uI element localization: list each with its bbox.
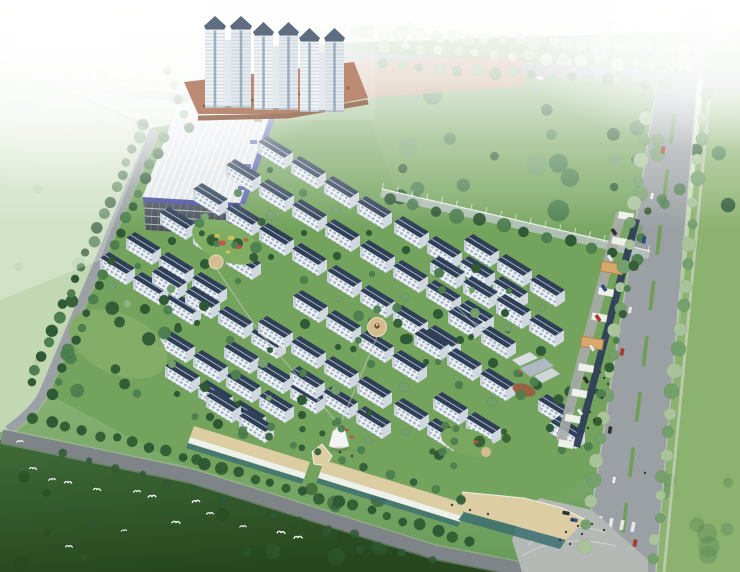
tree-icon	[192, 413, 199, 420]
tree-icon	[487, 397, 497, 407]
tree-icon	[366, 230, 372, 236]
tree-icon	[58, 299, 68, 309]
tree-icon	[133, 389, 142, 398]
tree-icon	[199, 230, 205, 236]
tree-icon	[27, 413, 38, 424]
tree-icon	[625, 239, 636, 250]
tree-icon	[401, 293, 409, 301]
tree-icon	[298, 486, 307, 495]
tree-icon	[667, 363, 682, 378]
tree-icon	[305, 483, 318, 496]
tree-icon	[111, 364, 121, 374]
tree-icon	[338, 456, 346, 464]
tree-icon	[44, 337, 54, 347]
tree-icon	[456, 336, 464, 344]
tree-icon	[504, 324, 512, 332]
tree-icon	[319, 430, 325, 436]
tree-icon	[127, 436, 138, 447]
tree-icon	[111, 464, 119, 472]
tree-icon	[163, 305, 172, 314]
person-dot	[339, 451, 341, 453]
tree-icon	[333, 252, 341, 260]
tree-icon	[114, 317, 125, 328]
tree-icon	[135, 263, 141, 269]
tree-icon	[536, 346, 546, 356]
tree-icon	[95, 281, 104, 290]
tree-icon	[198, 458, 210, 470]
tree-icon	[624, 285, 631, 292]
tree-icon	[609, 350, 619, 360]
tree-icon	[313, 493, 324, 504]
tree-icon	[231, 370, 241, 380]
tree-icon	[438, 286, 446, 294]
tree-icon	[60, 421, 70, 431]
tree-icon	[296, 516, 302, 522]
tree-icon	[580, 519, 590, 529]
person-dot	[571, 519, 573, 521]
tree-icon	[299, 444, 306, 451]
tree-icon	[373, 305, 381, 313]
tree-icon	[333, 495, 345, 507]
flower-bed	[518, 371, 522, 374]
tree-icon	[47, 389, 58, 400]
gazebo-roof-top	[376, 324, 378, 326]
tower-haze-wash	[180, 8, 375, 120]
garden-plaza	[481, 447, 491, 457]
tree-icon	[159, 295, 169, 305]
tree-icon	[398, 518, 407, 527]
tree-icon	[565, 235, 577, 247]
tree-icon	[328, 548, 345, 565]
tree-icon	[300, 276, 308, 284]
tree-icon	[664, 408, 676, 420]
tree-icon	[107, 257, 115, 265]
tree-icon	[44, 530, 51, 537]
tree-icon	[398, 549, 406, 557]
tree-icon	[95, 432, 105, 442]
tree-icon	[584, 442, 592, 450]
tree-icon	[54, 312, 66, 324]
tree-icon	[140, 304, 150, 314]
tree-icon	[501, 309, 509, 317]
tree-icon	[661, 449, 674, 462]
tree-icon	[267, 423, 275, 431]
tree-icon	[70, 384, 84, 398]
tree-icon	[215, 420, 222, 427]
tree-icon	[113, 433, 121, 441]
tree-icon	[690, 517, 705, 532]
tree-icon	[67, 289, 75, 297]
tree-icon	[402, 246, 410, 254]
tree-icon	[105, 301, 119, 315]
tree-icon	[235, 401, 241, 407]
tree-icon	[586, 243, 597, 254]
person-dot	[644, 472, 646, 474]
tree-icon	[297, 395, 307, 405]
tree-icon	[429, 556, 437, 564]
tree-icon	[174, 391, 180, 397]
tree-icon	[433, 525, 445, 537]
tree-icon	[71, 275, 79, 283]
tree-icon	[516, 390, 526, 400]
tree-icon	[502, 434, 511, 443]
tree-icon	[300, 319, 310, 329]
tree-icon	[250, 242, 262, 254]
tree-icon	[58, 449, 67, 458]
tree-icon	[215, 462, 228, 475]
tree-icon	[392, 303, 401, 312]
flower-bed	[345, 429, 349, 432]
tree-icon	[619, 310, 627, 318]
tree-icon	[167, 285, 175, 293]
tree-icon	[282, 484, 291, 493]
tree-icon	[432, 485, 440, 493]
person-dot	[603, 529, 605, 531]
site-plan-rendering: Bird's-eye architectural rendering of a …	[0, 0, 740, 572]
flower-bed	[218, 240, 226, 245]
rendering-canvas: Bird's-eye architectural rendering of a …	[0, 0, 740, 572]
tree-icon	[338, 425, 345, 432]
tower-cluster	[180, 8, 375, 120]
tree-icon	[615, 282, 625, 292]
tree-icon	[596, 433, 606, 443]
person-dot	[587, 427, 589, 429]
tree-icon	[723, 478, 733, 488]
tent-shadow	[331, 447, 349, 452]
tree-icon	[235, 278, 241, 284]
tree-icon	[393, 318, 402, 327]
tree-icon	[298, 411, 306, 419]
person-dot	[469, 509, 471, 511]
tree-icon	[13, 555, 29, 571]
tree-icon	[506, 288, 512, 294]
tree-icon	[258, 358, 268, 368]
tree-icon	[386, 470, 396, 480]
tree-icon	[607, 323, 621, 337]
tree-icon	[158, 327, 171, 340]
tree-icon	[589, 454, 603, 468]
person-dot	[559, 539, 561, 541]
tree-icon	[314, 448, 321, 455]
tree-icon	[554, 394, 564, 404]
tree-icon	[78, 324, 86, 332]
tree-icon	[119, 379, 130, 390]
tree-icon	[290, 442, 297, 449]
tree-icon	[678, 299, 691, 312]
tree-icon	[681, 237, 695, 251]
person-dot	[569, 543, 571, 545]
flower-bed	[236, 245, 242, 249]
flower-bed	[244, 238, 249, 241]
tree-icon	[226, 336, 234, 344]
tree-icon	[368, 506, 377, 515]
tree-icon	[584, 495, 597, 508]
person-dot	[451, 504, 453, 506]
person-dot	[607, 383, 609, 385]
tree-icon	[144, 443, 154, 453]
tree-icon	[679, 280, 692, 293]
tree-icon	[530, 377, 539, 386]
tree-icon	[82, 309, 90, 317]
tree-icon	[200, 259, 210, 269]
person-dot	[591, 523, 593, 525]
tree-icon	[648, 554, 658, 564]
tree-icon	[110, 240, 120, 250]
tree-icon	[243, 548, 252, 557]
tree-icon	[410, 479, 417, 486]
tree-icon	[251, 475, 260, 484]
tree-icon	[356, 546, 364, 554]
flower-bed	[226, 250, 231, 253]
tree-icon	[402, 334, 413, 345]
flower-bed	[474, 440, 479, 443]
tree-icon	[334, 418, 342, 426]
tree-icon	[335, 344, 341, 350]
tree-icon	[233, 467, 244, 478]
tree-icon	[364, 436, 372, 444]
tree-icon	[29, 365, 40, 376]
tree-icon	[488, 358, 498, 368]
tree-icon	[216, 508, 229, 521]
tree-icon	[77, 425, 87, 435]
tree-icon	[414, 518, 426, 530]
tree-icon	[90, 520, 100, 530]
tree-icon	[160, 445, 171, 456]
tree-icon	[124, 300, 131, 307]
tree-icon	[450, 437, 458, 445]
tree-icon	[355, 337, 362, 344]
tree-icon	[194, 320, 200, 326]
tree-icon	[541, 232, 552, 243]
tree-icon	[179, 453, 187, 461]
person-dot	[577, 525, 579, 527]
tree-icon	[699, 546, 717, 564]
tree-icon	[46, 325, 58, 337]
tree-icon	[36, 351, 47, 362]
tree-icon	[721, 523, 734, 536]
tree-icon	[162, 480, 171, 489]
tree-icon	[546, 424, 554, 432]
tree-icon	[46, 416, 58, 428]
tree-icon	[455, 381, 463, 389]
tree-icon	[468, 334, 474, 340]
tree-icon	[325, 525, 332, 532]
tree-icon	[174, 325, 182, 333]
tree-icon	[374, 542, 382, 550]
person-dot	[599, 371, 601, 373]
tree-icon	[399, 382, 409, 392]
tree-icon	[438, 448, 446, 456]
tree-icon	[501, 429, 507, 435]
tree-icon	[265, 433, 273, 441]
tree-icon	[450, 462, 457, 469]
tree-icon	[593, 417, 602, 426]
tree-icon	[456, 495, 466, 505]
tree-icon	[168, 237, 176, 245]
flower-bed	[228, 236, 235, 241]
tree-icon	[469, 287, 475, 293]
tree-icon	[268, 254, 274, 260]
tree-icon	[671, 342, 686, 357]
tree-icon	[674, 323, 687, 336]
tree-icon	[28, 378, 36, 386]
tree-icon	[245, 502, 251, 508]
person-dot	[351, 455, 353, 457]
tree-icon	[219, 497, 227, 505]
tree-icon	[434, 268, 444, 278]
tree-icon	[662, 426, 674, 438]
tree-icon	[452, 425, 459, 432]
tree-icon	[72, 336, 81, 345]
tree-icon	[267, 347, 273, 353]
flower-bed	[214, 234, 220, 238]
tree-icon	[299, 426, 305, 432]
tree-icon	[359, 463, 367, 471]
tree-icon	[470, 308, 480, 318]
tree-icon	[586, 472, 601, 487]
person-dot	[565, 531, 567, 533]
tree-icon	[67, 350, 75, 358]
tree-icon	[331, 385, 341, 395]
tree-icon	[347, 499, 358, 510]
tree-icon	[369, 271, 375, 277]
tree-icon	[604, 363, 614, 373]
tree-icon	[199, 301, 209, 311]
tree-icon	[447, 532, 458, 543]
tree-icon	[367, 360, 375, 368]
tree-icon	[265, 544, 280, 559]
tree-icon	[43, 489, 51, 497]
tree-icon	[655, 513, 665, 523]
tree-icon	[269, 511, 277, 519]
tree-icon	[86, 458, 92, 464]
tree-icon	[353, 311, 364, 322]
tree-icon	[655, 471, 667, 483]
person-dot	[596, 389, 598, 391]
tree-icon	[168, 360, 176, 368]
tree-icon	[239, 426, 247, 434]
person-dot	[487, 513, 489, 515]
tree-icon	[142, 332, 155, 345]
tree-icon	[140, 471, 146, 477]
flower-bed	[350, 435, 355, 438]
tree-icon	[683, 259, 694, 270]
tree-icon	[577, 539, 592, 554]
tree-icon	[88, 294, 98, 304]
tree-icon	[299, 369, 307, 377]
tree-icon	[383, 512, 391, 520]
tree-icon	[266, 479, 274, 487]
tree-icon	[200, 382, 210, 392]
tree-icon	[471, 263, 481, 273]
person-dot	[589, 411, 591, 413]
tree-icon	[108, 282, 116, 290]
tree-icon	[266, 395, 272, 401]
tree-icon	[629, 261, 639, 271]
tree-icon	[350, 529, 359, 538]
tree-icon	[357, 446, 365, 454]
tree-icon	[538, 304, 546, 312]
person-dot	[593, 419, 595, 421]
person-dot	[601, 397, 603, 399]
tree-icon	[423, 359, 429, 365]
tree-icon	[336, 296, 342, 302]
tree-icon	[97, 269, 108, 280]
tree-icon	[350, 346, 357, 353]
tree-icon	[81, 554, 87, 560]
tree-icon	[55, 379, 62, 386]
tree-icon	[664, 384, 679, 399]
tree-icon	[249, 253, 258, 262]
person-dot	[581, 533, 583, 535]
tree-icon	[435, 359, 441, 365]
tree-icon	[433, 309, 443, 319]
tree-icon	[402, 428, 410, 436]
tree-icon	[366, 410, 372, 416]
tree-icon	[464, 537, 474, 547]
tree-icon	[429, 448, 435, 454]
tree-icon	[655, 490, 665, 500]
tree-icon	[190, 486, 199, 495]
person-dot	[603, 377, 605, 379]
tree-icon	[18, 471, 30, 483]
tree-icon	[57, 363, 66, 372]
tree-icon	[613, 337, 619, 343]
tree-icon	[206, 413, 214, 421]
tree-icon	[301, 230, 307, 236]
tree-icon	[649, 534, 661, 546]
